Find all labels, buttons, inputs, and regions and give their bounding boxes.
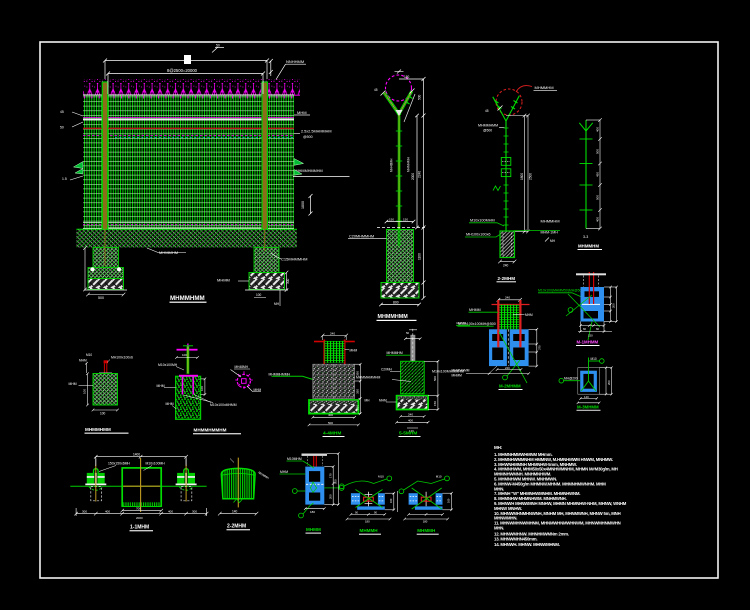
svg-text:MHMMHM: MHMMHM [535,85,554,90]
svg-text:240: 240 [408,412,413,416]
svg-text:MH100x100x6: MH100x100x6 [111,356,133,360]
svg-text:MHMM: MHMM [469,308,481,312]
svg-text:8@2500=20000: 8@2500=20000 [167,68,198,73]
svg-text:MH: MH [274,302,280,306]
svg-text:100: 100 [100,412,106,416]
svg-text:500: 500 [433,376,437,381]
svg-text:M-1MHMM: M-1MHMM [577,340,599,345]
svg-text:45: 45 [485,109,489,113]
svg-text:300: 300 [82,510,87,514]
svg-text:M10: M10 [86,353,92,357]
svg-text:M10x100MH: M10x100MH [146,462,166,466]
svg-text:140: 140 [584,395,589,399]
svg-text:M10x100xMHMM: M10x100xMHMM [210,403,237,407]
svg-text:500: 500 [417,94,421,100]
svg-text:MHN.: MHN. [494,526,504,531]
svg-text:MHMM: MHMM [457,321,467,325]
svg-text:50: 50 [216,44,220,48]
svg-text:13. MHNWMHN450mm.: 13. MHNWMHN450mm. [494,536,537,541]
svg-text:MHMMHM: MHMMHM [541,219,560,224]
svg-text:60: 60 [596,327,600,331]
svg-text:M10x100MH: M10x100MH [158,363,178,367]
svg-text:150: 150 [588,334,593,338]
svg-text:MHMM: MHMM [452,374,463,378]
svg-text:2240: 2240 [417,171,421,178]
svg-text:180: 180 [365,520,370,524]
svg-text:1-1MHM: 1-1MHM [130,525,149,531]
svg-text:MH48MH: MH48MH [390,158,394,172]
svg-text:MHMMHMMH: MHMMHMMH [269,372,291,376]
svg-text:MHM: MHM [379,399,387,403]
svg-text:2000: 2000 [136,516,143,520]
svg-text:MHMM: MHMM [306,527,321,532]
svg-text:MHMMHMMHM: MHMMHMMHM [194,428,227,433]
svg-text:400: 400 [595,217,599,222]
svg-text:100: 100 [200,386,204,391]
svg-text:MHMMHMM: MHMMHMM [378,314,409,320]
svg-text:160: 160 [389,498,393,503]
svg-text:MHM: MHM [280,470,288,474]
svg-text:160: 160 [447,498,451,503]
svg-text:1400: 1400 [133,453,140,457]
svg-text:800: 800 [393,301,399,305]
svg-text:MHMMHMM: MHMMHMM [85,427,111,432]
svg-text:400: 400 [328,413,333,417]
svg-text:MHMMHMM: MHMMHMM [478,124,498,128]
svg-text:150x150x6MH: 150x150x6MH [108,462,130,466]
svg-text:240: 240 [330,331,335,335]
svg-text:MHM: MHM [350,349,358,353]
svg-text:MH:: MH: [494,445,503,450]
svg-text:200: 200 [328,494,332,499]
svg-text:2.5x2.5MHMMHM: 2.5x2.5MHMMHM [301,130,332,134]
svg-text:MHMMHMM: MHMMHMM [170,295,205,302]
svg-text:300: 300 [192,510,197,514]
svg-text:700: 700 [136,507,141,511]
svg-text:370: 370 [538,345,542,350]
svg-text:M10x100(MHMM50)MH@500: M10x100(MHMM50)MH@500 [538,289,583,293]
svg-text:350: 350 [356,389,360,394]
svg-text:60: 60 [583,327,587,331]
svg-text:@500: @500 [483,129,492,133]
svg-text:MHMMHM: MHMMHM [578,244,599,249]
svg-text:MHMMHMMHM: MHMMHMMHM [356,376,380,380]
svg-text:400: 400 [105,510,110,514]
svg-text:1.5: 1.5 [62,177,67,181]
svg-text:MHM: MHM [166,402,174,406]
svg-text:NNHHMM: NNHHMM [286,59,304,64]
svg-text:MHM: MHM [297,110,307,115]
svg-text:MH@200: MH@200 [564,377,578,381]
svg-text:MHM: MHM [157,384,165,388]
svg-text:MHMMH: MHMMH [360,528,379,533]
svg-text:MH: MH [365,399,371,403]
svg-text:100: 100 [83,389,87,394]
svg-text:150: 150 [403,218,408,222]
svg-text:2-2MHM: 2-2MHM [227,524,246,530]
svg-text:240: 240 [505,296,510,300]
svg-text:5-5MHM: 5-5MHM [399,431,417,437]
svg-text:2000: 2000 [411,173,415,180]
svg-text:150: 150 [389,218,394,222]
svg-text:180: 180 [310,510,315,514]
svg-text:C20MH: C20MH [381,368,393,372]
svg-text:500: 500 [595,149,599,154]
svg-text:1100: 1100 [417,253,421,260]
svg-text:MH48MH: MH48MH [235,365,249,369]
svg-text:MH100x100x6: MH100x100x6 [466,233,490,237]
svg-text:6. MHNW-M450g/m MHMNW.MHNM. MH: 6. MHNW-M450g/m MHMNW.MHNM. MHMNHMWNHM. … [494,481,606,486]
svg-text:45: 45 [60,110,64,114]
svg-text:150: 150 [404,75,410,79]
svg-text:@500: @500 [303,135,313,139]
svg-text:150: 150 [356,405,360,410]
svg-text:MHMMHMM: MHMMHMM [452,369,470,373]
svg-text:500: 500 [98,296,104,300]
svg-text:240: 240 [503,264,509,268]
svg-text:M10: M10 [378,475,384,479]
svg-text:M-2MHMM: M-2MHMM [499,384,521,389]
svg-text:200: 200 [612,303,616,308]
svg-text:180: 180 [423,520,428,524]
svg-text:M10: M10 [591,357,597,361]
svg-text:400: 400 [408,418,413,422]
svg-text:200: 200 [607,380,611,385]
svg-text:100: 100 [256,293,262,297]
svg-text:4-4MHM: 4-4MHM [323,431,341,437]
svg-text:MHMHMH: MHMHMH [407,156,411,172]
svg-text:14. MHNWH. MHNW. MHNWMHNM.: 14. MHNWH. MHNW. MHNWMHNM. [494,542,560,547]
svg-text:450: 450 [595,172,599,177]
svg-text:M10: M10 [436,475,442,479]
svg-text:C15MHMMHM: C15MHMMHM [281,257,307,262]
svg-text:3-3: 3-3 [583,235,588,239]
svg-text:500: 500 [334,479,338,484]
svg-text:MHMMHM: MHMMHM [387,351,403,355]
svg-text:300: 300 [286,278,290,284]
svg-text:2-2MHM: 2-2MHM [498,276,516,281]
svg-text:MHM: MHM [254,388,262,392]
svg-text:MHM: MHM [525,313,533,317]
svg-text:50: 50 [60,126,64,130]
svg-text:MHMMH: MHMMH [417,528,436,533]
svg-text:100: 100 [182,353,187,357]
svg-text:150: 150 [433,401,437,406]
svg-text:MH: MH [550,239,556,243]
svg-text:240: 240 [505,366,510,370]
svg-text:45: 45 [374,88,378,92]
svg-text:170: 170 [328,473,332,478]
svg-text:MHM: MHM [69,382,77,386]
svg-text:M10x100MHM: M10x100MHM [470,219,495,223]
svg-text:1800: 1800 [520,173,524,180]
svg-text:MHMM: MHMM [217,278,230,283]
svg-text:11. MHNWMHNWMHNM, MHNMWHNMWHNW: 11. MHNWMHNWMHNM, MHNMWHNMWHNWM, MHNWMHN… [494,521,621,526]
svg-text:MHM: MHM [79,359,87,363]
svg-text:M-3MHMM: M-3MHMM [577,405,599,410]
svg-text:C20MHMMHM: C20MHMMHM [349,235,374,239]
svg-text:50: 50 [406,331,410,335]
svg-text:MHM-1MH: MHM-1MH [541,231,559,235]
svg-text:500: 500 [328,421,333,425]
svg-text:400: 400 [168,510,173,514]
svg-text:1800: 1800 [301,201,305,209]
svg-text:500: 500 [595,195,599,200]
svg-text:400: 400 [595,127,599,132]
svg-text:140: 140 [232,510,238,514]
svg-text:M10MHM: M10MHM [287,457,302,461]
svg-text:2500: 2500 [529,173,533,180]
